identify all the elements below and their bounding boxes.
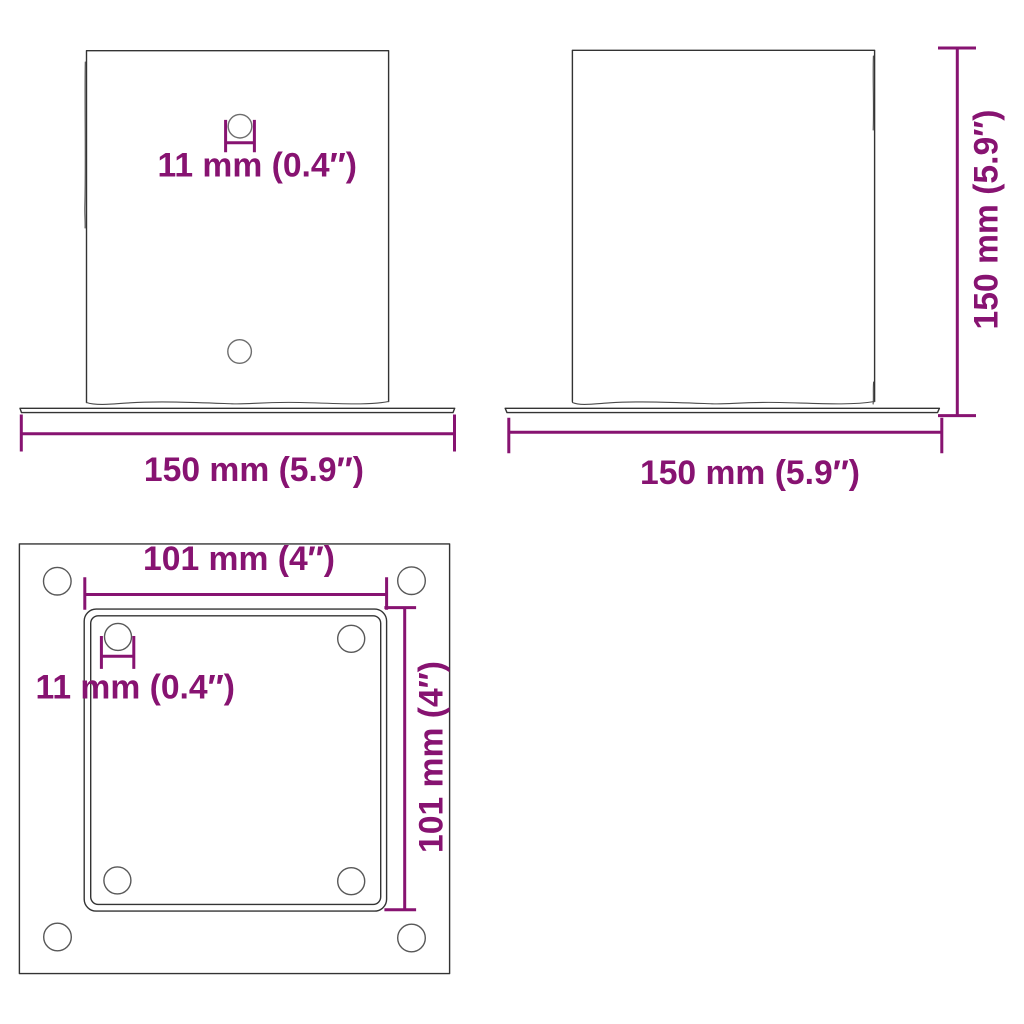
svg-text:150 mm (5.9″): 150 mm (5.9″) [967, 109, 1005, 329]
svg-text:11 mm (0.4″): 11 mm (0.4″) [35, 668, 234, 706]
svg-text:150 mm (5.9″): 150 mm (5.9″) [144, 451, 364, 489]
svg-text:101 mm (4″): 101 mm (4″) [143, 540, 335, 578]
svg-text:11 mm (0.4″): 11 mm (0.4″) [157, 146, 356, 184]
svg-text:101 mm (4″): 101 mm (4″) [412, 661, 450, 853]
svg-text:150 mm (5.9″): 150 mm (5.9″) [640, 454, 860, 492]
